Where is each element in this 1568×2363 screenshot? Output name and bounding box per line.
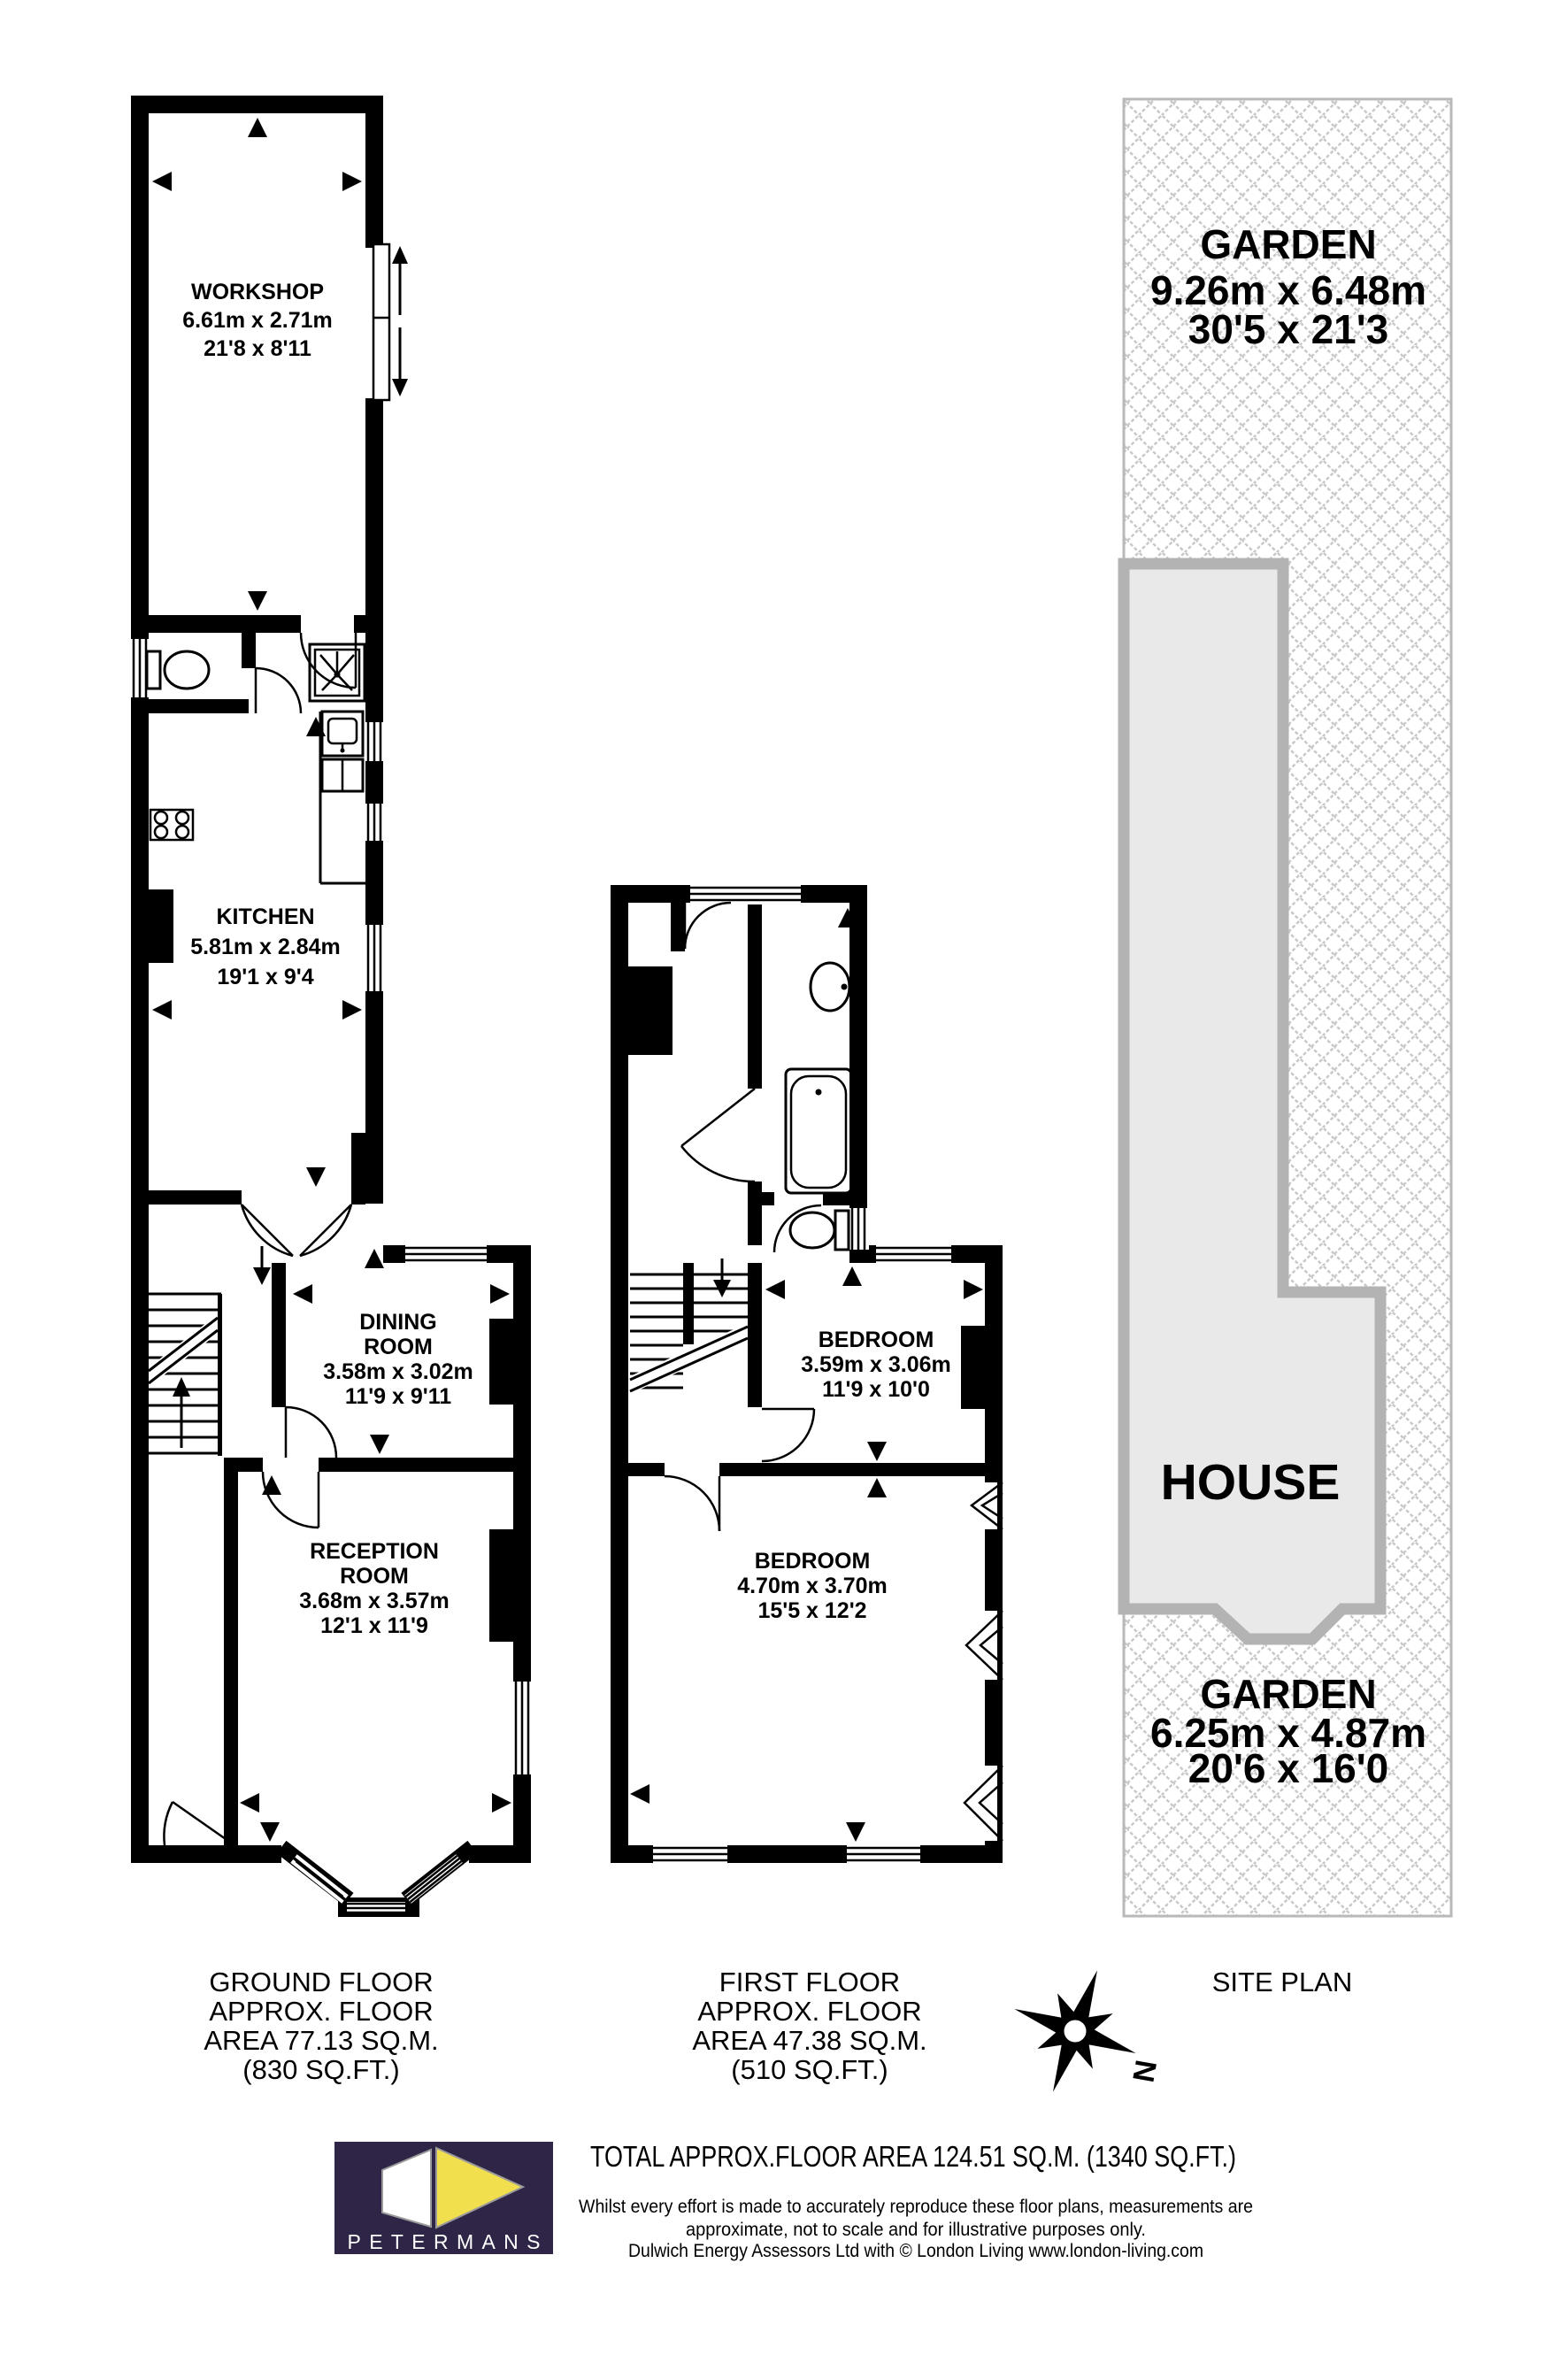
- ground-floor-measure-arrows: [152, 118, 511, 1842]
- ground-floor-windows: [129, 244, 533, 1913]
- workshop-name: WORKSHOP: [191, 280, 324, 304]
- logo-brand-text: PETERMANS: [348, 2230, 547, 2253]
- ground-caption-1: GROUND FLOOR: [209, 1967, 433, 1997]
- dining-room-label: DINING ROOM 3.58m x 3.02m 11'9 x 9'11: [323, 1310, 473, 1409]
- site-plan-caption: SITE PLAN: [1212, 1967, 1353, 1997]
- kitchen-window-2: [364, 804, 385, 841]
- bathroom-top-window: [690, 883, 801, 904]
- first-caption-1: FIRST FLOOR: [719, 1967, 900, 1997]
- bedroom-front-window-1: [653, 1843, 727, 1865]
- dining-name-1: DINING: [359, 1310, 437, 1335]
- first-floor-plan: BEDROOM 3.59m x 3.06m 11'9 x 10'0 BEDROO…: [611, 883, 1003, 1865]
- toilet-window: [848, 1208, 869, 1250]
- landing-chimney-breast: [628, 966, 673, 1055]
- hob-icon: [150, 810, 193, 840]
- workshop-label: WORKSHOP 6.61m x 2.71m 21'8 x 8'11: [182, 280, 333, 361]
- compass-north-label: N: [1126, 2058, 1163, 2085]
- bedroom-front-metric: 4.70m x 3.70m: [737, 1574, 888, 1598]
- bedroom-rear-chimney-breast: [961, 1326, 985, 1409]
- bathroom-sink-icon: [811, 963, 849, 1011]
- reception-room-label: RECEPTION ROOM 3.68m x 3.57m 12'1 x 11'9: [299, 1539, 450, 1638]
- bedroom-front-casement-2: [966, 1611, 1003, 1680]
- workshop-window: [373, 244, 408, 400]
- ground-caption-2: APPROX. FLOOR: [209, 1996, 433, 2027]
- kitchen-unit-icon: [320, 712, 365, 883]
- bedroom-front-casement-3: [965, 1766, 1003, 1841]
- dining-imperial: 11'9 x 9'11: [345, 1384, 451, 1409]
- dining-chimney-breast: [489, 1319, 513, 1405]
- garden-rear-imperial: 30'5 x 21'3: [1188, 306, 1389, 352]
- first-caption-3: AREA 47.38 SQ.M.: [692, 2025, 926, 2056]
- workshop-imperial: 21'8 x 8'11: [204, 336, 311, 361]
- dining-window: [405, 1243, 487, 1265]
- kitchen-label: KITCHEN 5.81m x 2.84m 19'1 x 9'4: [190, 904, 341, 989]
- first-caption-4: (510 SQ.FT.): [731, 2054, 888, 2085]
- bedroom-rear-name: BEDROOM: [819, 1328, 934, 1352]
- kitchen-window-3: [364, 925, 385, 991]
- bedroom-front-imperial: 15'5 x 12'2: [757, 1598, 866, 1623]
- reception-chimney-breast: [489, 1529, 513, 1642]
- kitchen-name: KITCHEN: [216, 904, 314, 929]
- bedroom-rear-imperial: 11'9 x 10'0: [822, 1377, 930, 1402]
- disclaimer-line-1: Whilst every effort is made to accuratel…: [579, 2197, 1253, 2217]
- stairs-first: [630, 1258, 748, 1394]
- ground-floor-walls: [131, 96, 531, 1917]
- dining-metric: 3.58m x 3.02m: [323, 1359, 473, 1384]
- toilet-first-icon: [790, 1211, 849, 1250]
- ground-floor-plan: WORKSHOP 6.61m x 2.71m 21'8 x 8'11 KITCH…: [129, 96, 533, 1917]
- dining-name-2: ROOM: [364, 1335, 433, 1359]
- bedroom-front-casement-1: [972, 1482, 1003, 1529]
- kitchen-chimney-breast: [149, 889, 173, 963]
- first-floor-caption: FIRST FLOOR APPROX. FLOOR AREA 47.38 SQ.…: [692, 1967, 926, 2085]
- compass-icon: N: [1014, 1970, 1162, 2091]
- stairs-ground: [149, 1294, 222, 1456]
- reception-window: [511, 1682, 533, 1774]
- disclaimer-line-3: Dulwich Energy Assessors Ltd with © Lond…: [628, 2241, 1203, 2261]
- bedroom-rear-metric: 3.59m x 3.06m: [801, 1352, 951, 1377]
- house-label: HOUSE: [1161, 1454, 1341, 1511]
- captions: GROUND FLOOR APPROX. FLOOR AREA 77.13 SQ…: [204, 1967, 1352, 2085]
- ground-caption-4: (830 SQ.FT.): [242, 2054, 399, 2085]
- site-plan: GARDEN 9.26m x 6.48m 30'5 x 21'3 HOUSE G…: [1124, 99, 1451, 1916]
- floorplan-canvas: GARDEN 9.26m x 6.48m 30'5 x 21'3 HOUSE G…: [0, 0, 1568, 2363]
- petermans-logo: PETERMANS: [334, 2142, 553, 2254]
- footer: PETERMANS TOTAL APPROX.FLOOR AREA 124.51…: [334, 2140, 1253, 2261]
- reception-metric: 3.68m x 3.57m: [299, 1589, 450, 1613]
- bedroom-front-window-2: [847, 1843, 920, 1865]
- kitchen-window-1: [364, 722, 385, 761]
- ground-floor-caption: GROUND FLOOR APPROX. FLOOR AREA 77.13 SQ…: [204, 1967, 438, 2085]
- bedroom-rear-label: BEDROOM 3.59m x 3.06m 11'9 x 10'0: [801, 1328, 951, 1402]
- reception-name-2: ROOM: [340, 1564, 409, 1589]
- bedroom-front-name: BEDROOM: [755, 1549, 871, 1574]
- total-floor-area: TOTAL APPROX.FLOOR AREA 124.51 SQ.M. (13…: [590, 2140, 1236, 2173]
- kitchen-metric: 5.81m x 2.84m: [190, 935, 341, 959]
- reception-name-1: RECEPTION: [310, 1539, 439, 1564]
- kitchen-sink-icon: [322, 712, 363, 756]
- bath-icon: [786, 1069, 851, 1193]
- ground-caption-3: AREA 77.13 SQ.M.: [204, 2025, 438, 2056]
- toilet-icon: [147, 651, 209, 689]
- workshop-metric: 6.61m x 2.71m: [182, 308, 333, 333]
- kitchen-imperial: 19'1 x 9'4: [217, 965, 313, 989]
- bedroom-rear-window: [876, 1243, 951, 1265]
- garden-rear-name: GARDEN: [1200, 221, 1376, 267]
- garden-front-imperial: 20'6 x 16'0: [1188, 1745, 1389, 1791]
- disclaimer-line-2: approximate, not to scale and for illust…: [686, 2220, 1146, 2240]
- reception-imperial: 12'1 x 11'9: [320, 1613, 428, 1638]
- bedroom-front-label: BEDROOM 4.70m x 3.70m 15'5 x 12'2: [737, 1549, 888, 1623]
- first-caption-2: APPROX. FLOOR: [697, 1996, 921, 2027]
- first-floor-fixtures: [786, 963, 851, 1250]
